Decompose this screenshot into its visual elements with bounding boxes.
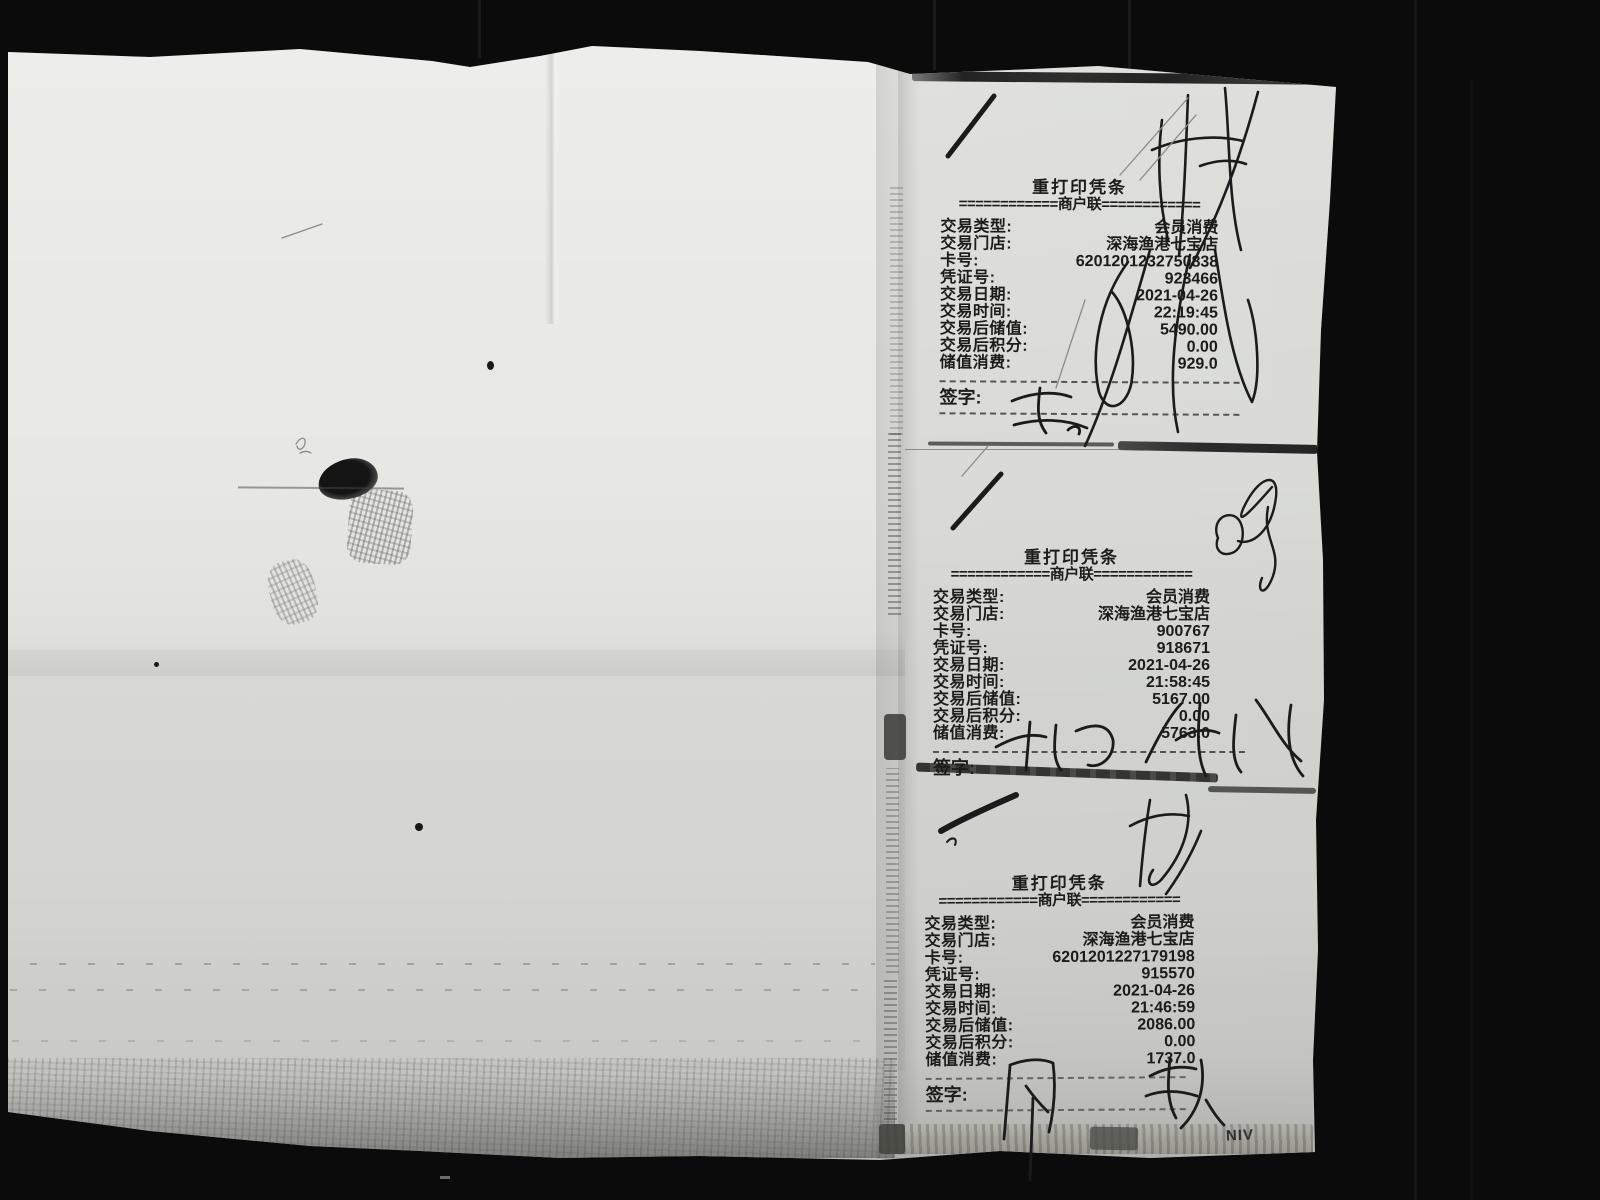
receipt-edge-streak (1208, 786, 1316, 794)
row-value: 2086.00 (1137, 1016, 1195, 1033)
row-label: 卡号: (933, 623, 972, 640)
row-label: 凭证号: (940, 269, 995, 286)
receipt-row: 交易类型:会员消费 (924, 914, 1194, 933)
row-value: 900767 (1157, 623, 1210, 640)
background-seam (478, 0, 481, 58)
row-label: 卡号: (925, 950, 964, 967)
ink-smudge-patch (263, 555, 323, 628)
receipt-edge-streak (912, 71, 1336, 85)
ink-smudge-patch (345, 488, 414, 566)
row-label: 交易日期: (933, 657, 1005, 674)
row-value: 6201201232750838 (1076, 253, 1218, 271)
receipt-row: 交易门店:深海渔港七宝店 (933, 606, 1210, 623)
background-seam (1128, 0, 1131, 68)
scan-speck (440, 1176, 450, 1179)
row-value: 5490.00 (1160, 321, 1218, 338)
photocopy-dotted-line (12, 1040, 872, 1042)
row-label: 凭证号: (933, 640, 988, 657)
receipt-row: 交易日期:2021-04-26 (940, 286, 1218, 304)
sign-label: 签字: (926, 1078, 1186, 1110)
toner-dot (487, 361, 494, 370)
receipt-row: 交易时间:21:58:45 (933, 674, 1210, 691)
receipt-2: 重打印凭条 ============商户联============ 交易类型:会… (933, 549, 1210, 783)
row-value: 深海渔港七宝店 (1083, 931, 1195, 949)
receipt-copy-line: ============商户联============ (940, 196, 1218, 213)
row-label: 交易后储值: (925, 1017, 1013, 1035)
row-label: 交易时间: (933, 674, 1005, 691)
row-label: 交易时间: (940, 303, 1012, 320)
receipt-row: 交易时间:21:46:59 (925, 999, 1195, 1018)
row-value: 923466 (1165, 270, 1218, 287)
receipt-3: 重打印凭条 ============商户联============ 交易类型:会… (924, 874, 1196, 1112)
row-label: 交易时间: (925, 1000, 997, 1018)
row-value: 深海渔港七宝店 (1106, 236, 1218, 254)
sign-label: 签字: (933, 753, 1245, 783)
row-label: 交易门店: (925, 932, 997, 950)
row-value: 0.00 (1164, 1033, 1195, 1050)
row-value: 5167.00 (1152, 691, 1210, 708)
row-value: 会员消费 (1154, 219, 1218, 236)
row-value: 6201201227179198 (1052, 948, 1194, 966)
fold-speckle-strip (886, 768, 899, 973)
fold-speckle-strip (884, 978, 897, 1126)
row-value: 0.00 (1187, 339, 1218, 356)
row-value: 5763.0 (1161, 725, 1210, 742)
row-label: 交易后积分: (933, 708, 1021, 725)
receipt-row: 交易日期:2021-04-26 (925, 982, 1195, 1001)
vertical-fold-crease (545, 44, 561, 324)
receipt-rows: 交易类型:会员消费 交易门店:深海渔港七宝店 卡号:62012012327508… (940, 218, 1219, 372)
receipt-row: 凭证号:923466 (940, 269, 1218, 287)
photocopy-dotted-line (10, 989, 878, 991)
row-label: 交易类型: (924, 915, 996, 933)
receipt-rows: 交易类型:会员消费 交易门店:深海渔港七宝店 卡号:62012012271791… (924, 914, 1195, 1069)
stamp-fragment-text: NIV (1226, 1127, 1255, 1145)
receipt-copy-line: ============商户联============ (933, 567, 1210, 583)
receipt-1: 重打印凭条 ============商户联============ 交易类型:会… (939, 178, 1218, 415)
dashed-separator (926, 1108, 1186, 1112)
row-label: 储值消费: (940, 354, 1012, 371)
row-label: 交易后积分: (940, 337, 1028, 354)
row-label: 交易日期: (925, 983, 997, 1001)
receipt-edge-streak (1118, 441, 1318, 454)
background-seam (933, 0, 936, 70)
receipt-row: 交易日期:2021-04-26 (933, 657, 1210, 674)
receipt-row: 卡号:900767 (933, 623, 1210, 640)
receipt-row: 交易门店:深海渔港七宝店 (940, 235, 1218, 253)
receipt-bottom-band-dark (879, 1124, 905, 1154)
receipt-row: 交易后积分:0.00 (933, 708, 1210, 725)
signature-area: 签字: (939, 380, 1239, 416)
receipt-row: 交易后储值:5167.00 (933, 691, 1210, 708)
row-value: 会员消费 (1130, 914, 1194, 931)
signature-area: 签字: (933, 751, 1245, 783)
row-value: 915570 (1141, 965, 1195, 982)
receipt-row: 交易时间:22:19:45 (940, 303, 1218, 321)
receipt-row: 卡号:6201201232750838 (940, 252, 1218, 270)
horizontal-crease (0, 630, 905, 676)
row-label: 凭证号: (925, 967, 980, 984)
dashed-separator (933, 751, 1245, 753)
background-seam (1414, 0, 1417, 1200)
receipt-bottom-band-dark (1090, 1127, 1138, 1151)
row-label: 卡号: (940, 252, 979, 269)
bottom-speckle-band (0, 1058, 895, 1158)
receipt-rows: 交易类型:会员消费 交易门店:深海渔港七宝店 卡号:900767 凭证号:918… (933, 589, 1210, 742)
row-label: 交易后储值: (933, 691, 1021, 708)
receipt-row: 卡号:6201201227179198 (925, 948, 1195, 967)
background-seam (1470, 80, 1473, 1200)
row-label: 交易后积分: (925, 1034, 1013, 1052)
signature-area: 签字: (926, 1076, 1186, 1112)
row-value: 21:46:59 (1131, 999, 1195, 1016)
receipt-title: 重打印凭条 (933, 549, 1210, 567)
row-value: 2021-04-26 (1113, 982, 1195, 1000)
receipt-row: 交易类型:会员消费 (940, 218, 1218, 236)
receipt-row: 交易后储值:5490.00 (940, 320, 1218, 338)
photocopy-dotted-line (30, 963, 875, 965)
paper-sheet: NIV 重打印凭条 ============商户联============ 交易… (0, 0, 1600, 1200)
receipt-copy-line: ============商户联============ (924, 892, 1194, 910)
row-value: 1737.0 (1146, 1050, 1195, 1067)
row-label: 交易类型: (940, 218, 1012, 235)
row-value: 21:58:45 (1146, 674, 1210, 691)
receipt-row: 交易后储值:2086.00 (925, 1016, 1195, 1035)
row-label: 交易门店: (933, 606, 1005, 623)
row-value: 2021-04-26 (1128, 657, 1210, 674)
fold-dark-block (884, 714, 906, 760)
row-value: 深海渔港七宝店 (1098, 606, 1210, 623)
receipt-edge-streak (928, 442, 1114, 447)
fold-speckle-strip (890, 185, 903, 435)
row-value: 929.0 (1178, 356, 1218, 373)
row-value: 22:19:45 (1154, 304, 1218, 321)
row-label: 储值消费: (925, 1051, 997, 1069)
row-label: 交易后储值: (940, 320, 1028, 337)
receipt-row: 储值消费:1737.0 (925, 1050, 1195, 1069)
toner-dot (415, 823, 423, 831)
row-value: 会员消费 (1146, 589, 1210, 606)
photocopy-scan: NIV 重打印凭条 ============商户联============ 交易… (0, 0, 1600, 1200)
receipt-row: 凭证号:915570 (925, 965, 1195, 984)
row-label: 交易日期: (940, 286, 1012, 303)
row-value: 918671 (1157, 640, 1210, 657)
receipt-row: 交易后积分:0.00 (925, 1033, 1195, 1052)
sign-label: 签字: (939, 382, 1239, 414)
receipt-row: 凭证号:918671 (933, 640, 1210, 657)
receipt-row: 交易后积分:0.00 (940, 337, 1218, 355)
lower-sheet-shading (0, 650, 905, 1070)
receipt-row: 交易门店:深海渔港七宝店 (925, 931, 1195, 950)
row-value: 2021-04-26 (1136, 287, 1218, 304)
toner-dot (154, 662, 159, 667)
row-value: 0.00 (1179, 708, 1210, 725)
fold-speckle-strip (888, 430, 901, 615)
receipt-row: 储值消费:929.0 (940, 354, 1218, 372)
receipt-row: 储值消费:5763.0 (933, 725, 1210, 742)
receipt-row: 交易类型:会员消费 (933, 589, 1210, 606)
row-label: 交易类型: (933, 589, 1005, 606)
dashed-separator (939, 412, 1239, 416)
row-label: 交易门店: (940, 235, 1012, 252)
row-label: 储值消费: (933, 725, 1005, 742)
